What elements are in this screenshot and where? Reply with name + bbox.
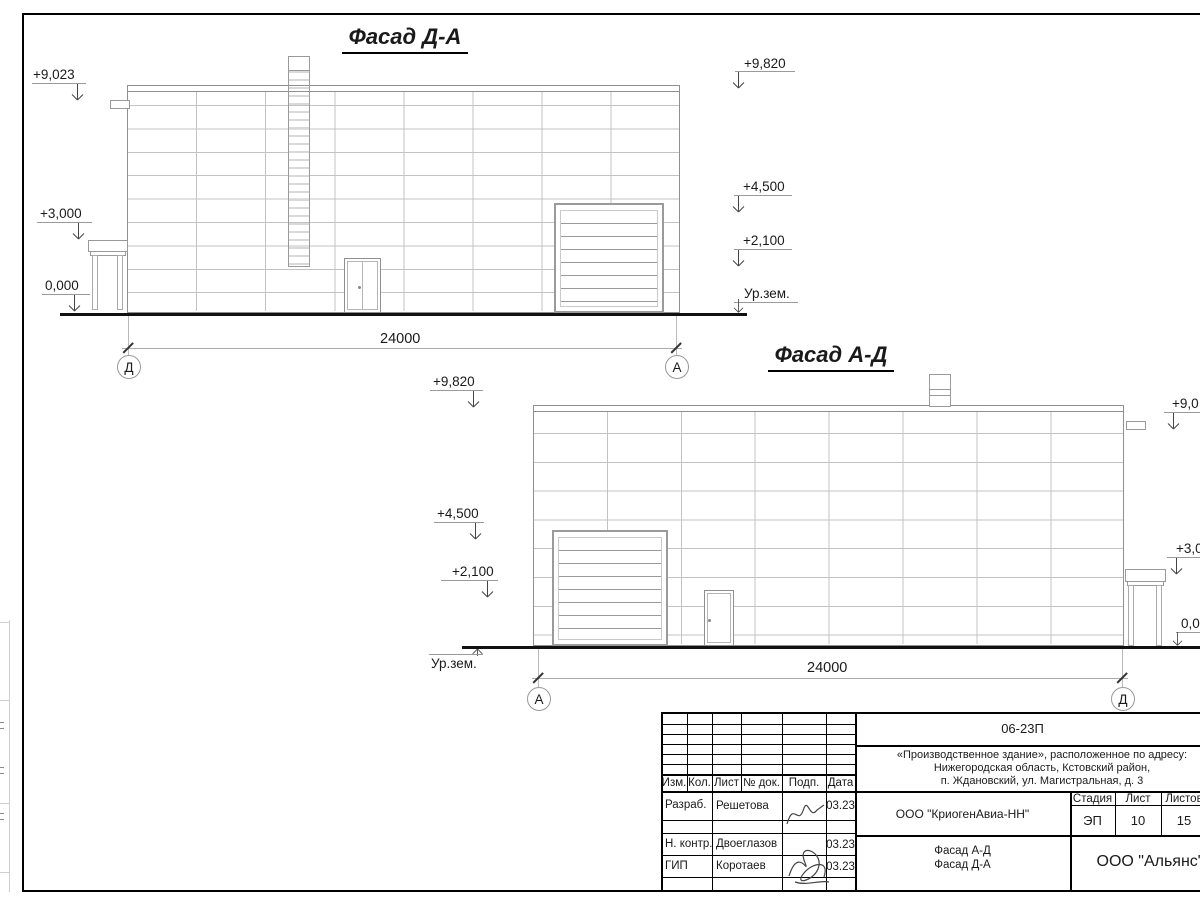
gate-slats [560, 210, 658, 307]
title-block-line [1070, 805, 1200, 806]
rev-header-podp: Подп. [782, 777, 826, 789]
roof-tab [1126, 421, 1146, 430]
elevation-label: +2,100 [452, 564, 494, 579]
left-cutoff-line [0, 700, 9, 701]
doc-code: 06-23П [855, 721, 1190, 736]
axis-bubble: Д [117, 355, 141, 379]
entry-door [344, 258, 381, 313]
left-cutoff-line [9, 620, 10, 892]
elevation-label: 0,0 [1181, 616, 1200, 631]
title-block-border [855, 745, 1200, 747]
sig-role: ГИП [665, 860, 688, 872]
porch-column [92, 255, 98, 310]
rev-header-ndok: № док. [741, 777, 782, 789]
title-block-border [855, 835, 1200, 837]
axis-label: Д [1118, 692, 1127, 707]
left-cutoff-text [0, 722, 4, 729]
axis-label: А [534, 692, 543, 707]
elevation-underline [42, 294, 90, 295]
signature-icon [784, 794, 826, 832]
elevation-mark-icon [71, 223, 86, 241]
entry-door [704, 590, 734, 646]
designer-company: ООО "КриогенАвиа-НН" [855, 807, 1070, 821]
sig-date: 03.23 [826, 800, 855, 812]
left-cutoff-line [0, 872, 9, 873]
axis-label: Д [124, 360, 133, 375]
elevation-label: Ур.зем. [744, 286, 790, 301]
axis-bubble: Д [1111, 687, 1135, 711]
rev-header-data: Дата [826, 777, 855, 789]
left-cutoff-line [0, 803, 9, 804]
sheets-header: Листов [1161, 793, 1200, 805]
elevation-label: +4,500 [437, 506, 479, 521]
elevation-mark-icon [1169, 558, 1184, 576]
sheet-value: 10 [1115, 813, 1161, 828]
project-address-line: Нижегородская область, Кстовский район, [855, 762, 1200, 774]
sig-role: Н. контр. [665, 838, 712, 850]
facade-bottom-title: Фасад А-Д [768, 342, 894, 372]
elevation-mark-icon [731, 196, 746, 214]
elevation-mark-icon [731, 250, 746, 268]
elevation-mark-icon [67, 295, 82, 313]
stage-value: ЭП [1070, 813, 1115, 828]
contractor-company: ООО "Альянс" [1070, 853, 1200, 871]
project-address-line: «Производственное здание», расположенное… [855, 749, 1200, 761]
sig-name: Двоеглазов [716, 838, 777, 850]
roof-tab [110, 100, 130, 109]
elevation-mark-icon [466, 391, 481, 409]
door-handle [708, 619, 711, 622]
elevation-mark-icon [480, 581, 495, 599]
elevation-mark-icon [731, 72, 746, 90]
extension-line [1122, 649, 1123, 687]
frame-bottom [22, 890, 1200, 892]
elevation-label: 0,000 [45, 278, 79, 293]
elevation-label: +9,023 [33, 67, 75, 82]
elevation-mark-icon [468, 523, 483, 541]
porch-column [117, 255, 123, 310]
sheets-value: 15 [1161, 813, 1200, 828]
door-leaf [707, 593, 731, 643]
dimension-line [532, 678, 1128, 679]
sectional-gate [554, 203, 664, 313]
roof-ladder [288, 70, 310, 267]
signature-icon [783, 836, 839, 888]
chimney-band [930, 389, 950, 390]
ground-line [462, 646, 1200, 649]
drawing-title-line: Фасад А-Д [855, 845, 1070, 857]
elevation-label: +9,820 [433, 374, 475, 389]
frame-left [22, 13, 24, 892]
extension-line [538, 649, 539, 687]
sig-name: Решетова [716, 800, 769, 812]
elevation-label: +3,0 [1176, 541, 1200, 556]
porch-column [1128, 585, 1134, 646]
title-block-line [712, 712, 713, 890]
elevation-mark-icon [70, 84, 85, 102]
elevation-label: +4,500 [743, 179, 785, 194]
axis-label: А [672, 360, 681, 375]
extension-line [676, 316, 677, 356]
drawing-sheet: Фасад Д-А [0, 0, 1200, 900]
ground-line [60, 313, 747, 316]
elevation-mark-icon [731, 299, 746, 314]
porch-column [1156, 585, 1162, 646]
dimension-value: 24000 [807, 660, 847, 676]
elevation-label: +9,0 [1172, 396, 1199, 411]
left-cutoff-text [0, 767, 4, 774]
door-handle [358, 286, 361, 289]
dimension-value: 24000 [380, 331, 420, 347]
rev-header-kol: Кол. [687, 777, 712, 789]
sig-role: Разраб. [665, 799, 706, 811]
sectional-gate [552, 530, 668, 646]
chimney-band [930, 395, 950, 396]
gate-slats [558, 537, 662, 640]
facade-top-title: Фасад Д-А [342, 24, 468, 54]
extension-line [128, 316, 129, 356]
left-cutoff-text [0, 813, 4, 820]
rev-header-izm: Изм. [661, 777, 687, 789]
rev-header-list: Лист [712, 777, 741, 789]
elevation-label: +9,820 [744, 56, 786, 71]
roof-chimney [929, 374, 951, 407]
title-block-border [661, 712, 663, 890]
elevation-label: Ур.зем. [431, 656, 477, 671]
project-address-line: п. Ждановский, ул. Магистральная, д. 3 [855, 775, 1200, 787]
dimension-line [122, 348, 682, 349]
elevation-label: +2,100 [743, 233, 785, 248]
door-leaf [362, 261, 378, 310]
sig-name: Коротаев [716, 860, 766, 872]
stage-header: Стадия [1070, 793, 1115, 805]
left-cutoff-line [0, 622, 9, 623]
elevation-mark-icon [1166, 413, 1181, 431]
axis-bubble: А [527, 687, 551, 711]
drawing-title-line: Фасад Д-А [855, 859, 1070, 871]
frame-top [22, 13, 1200, 15]
elevation-underline [429, 654, 483, 655]
axis-bubble: А [665, 355, 689, 379]
elevation-label: +3,000 [40, 206, 82, 221]
elevation-mark-icon [1170, 632, 1185, 647]
sheet-header: Лист [1115, 793, 1161, 805]
